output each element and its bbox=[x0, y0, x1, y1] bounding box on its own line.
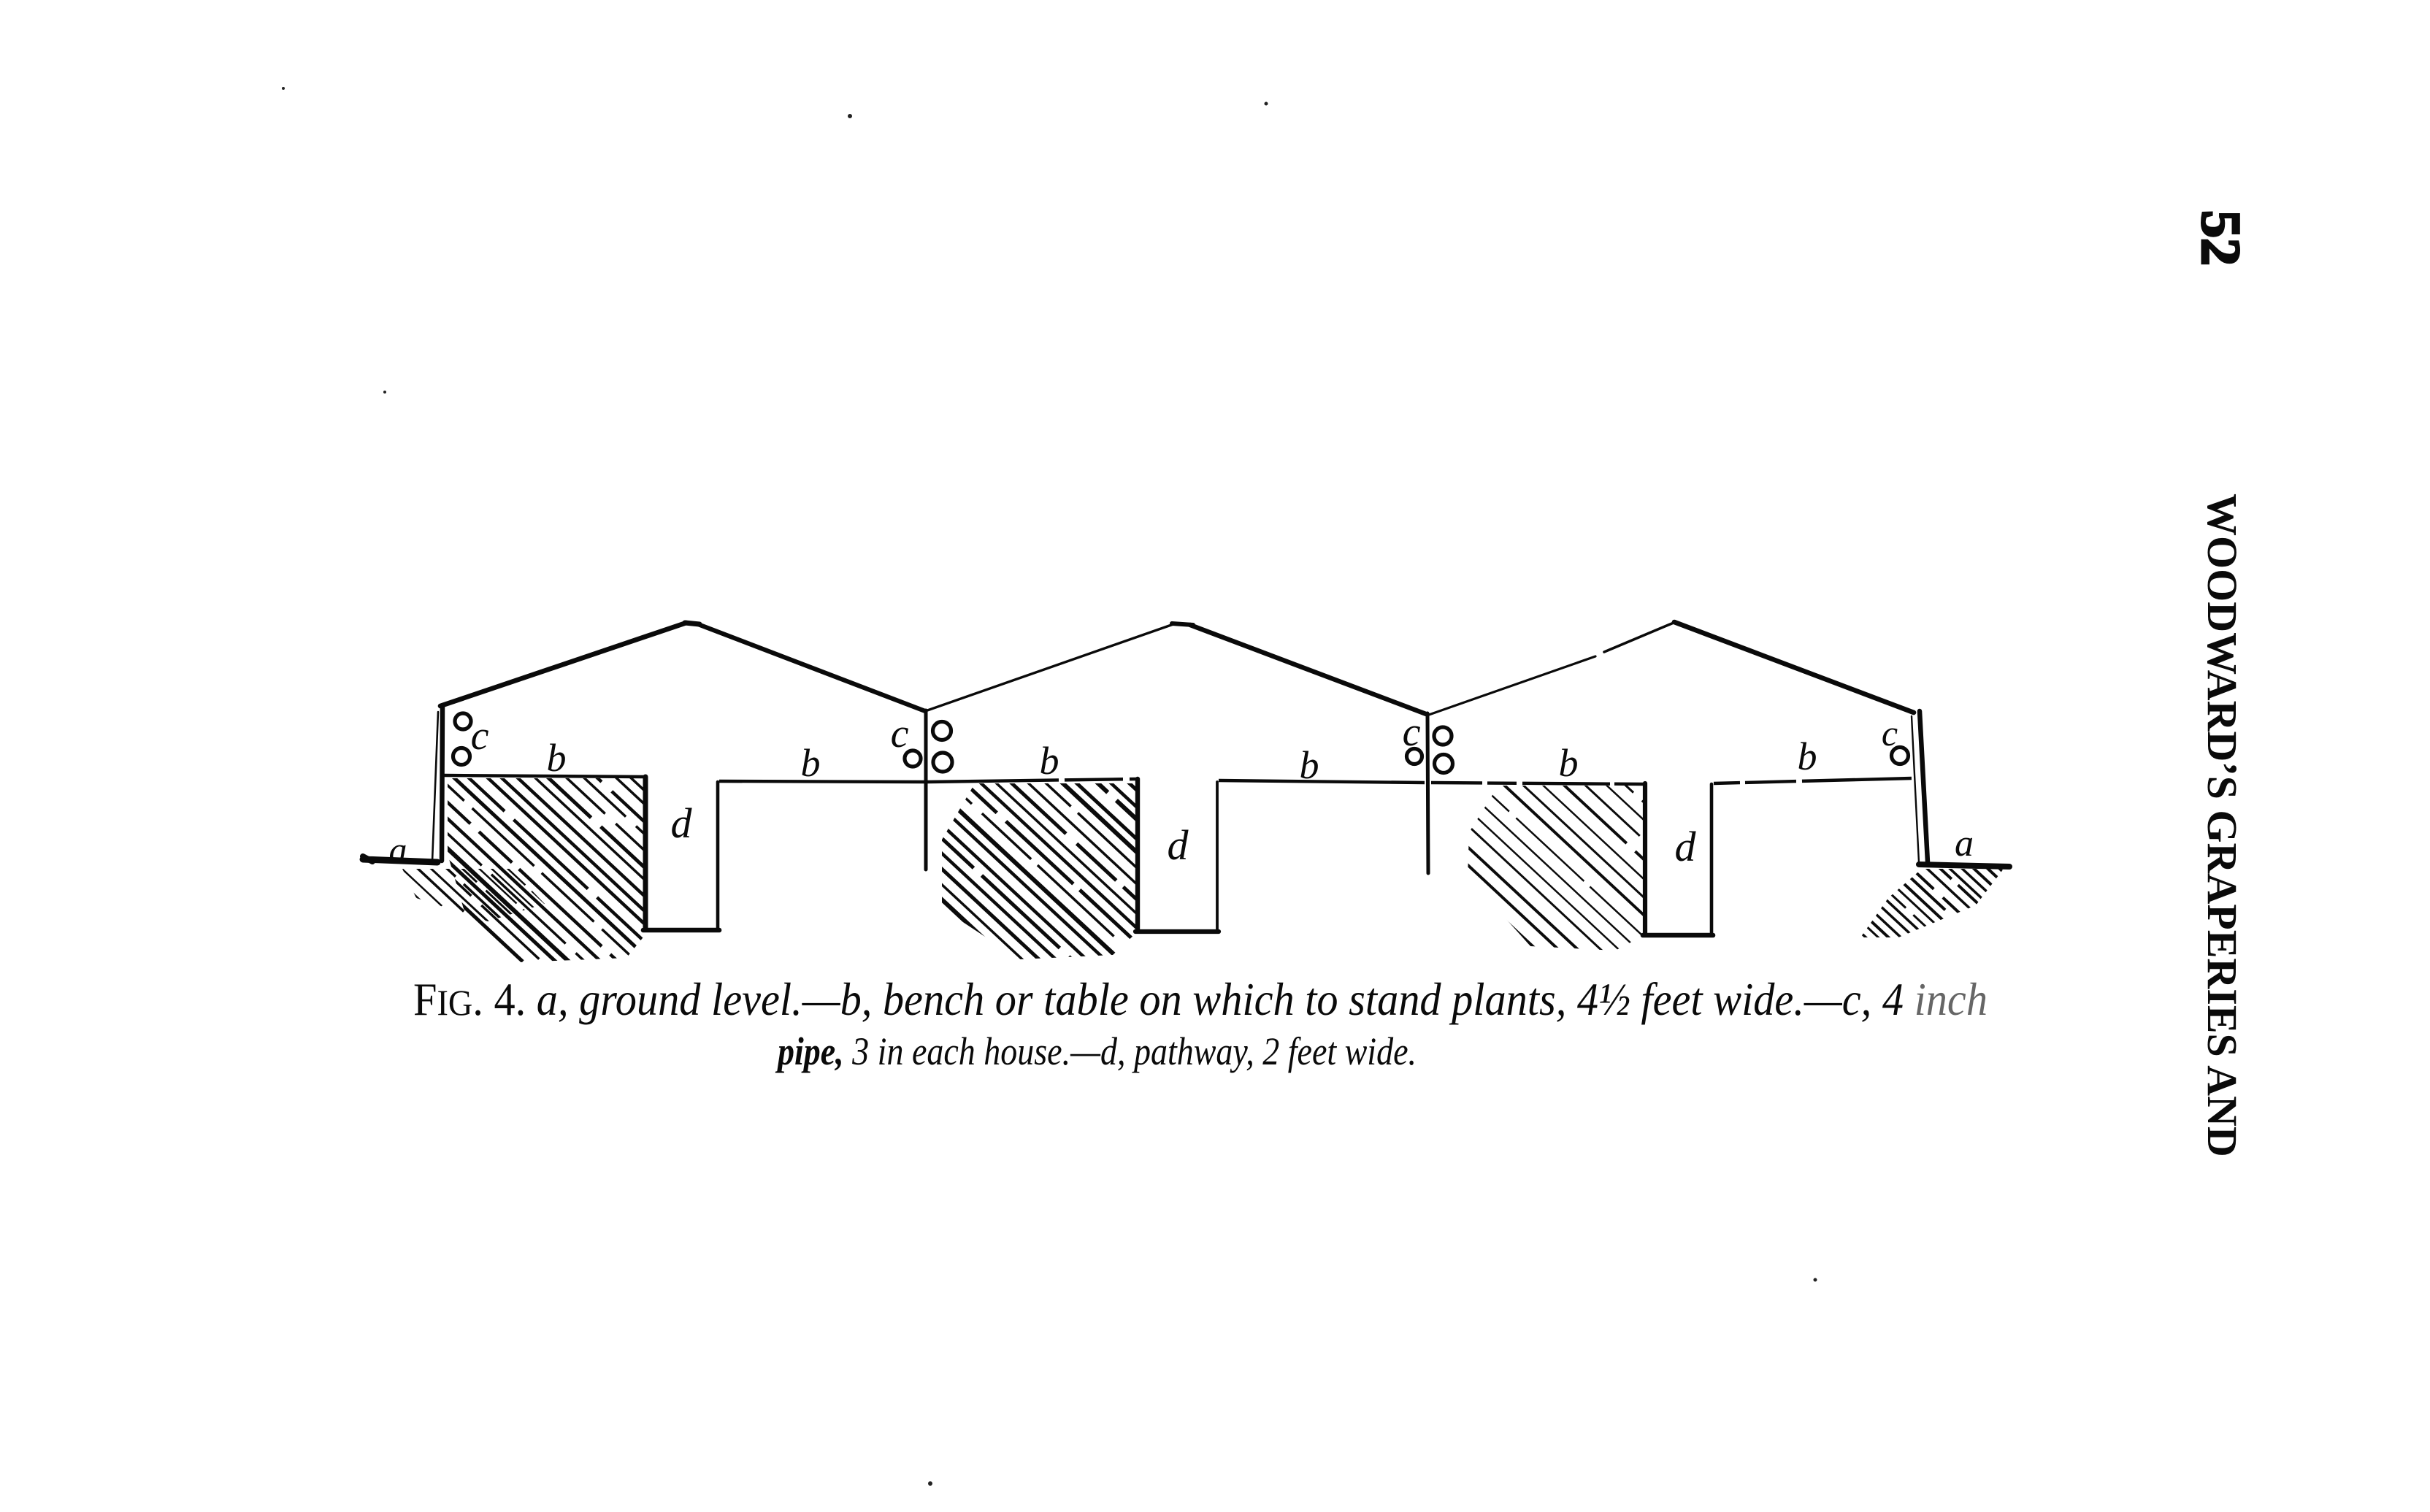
svg-text:a: a bbox=[1955, 823, 1974, 864]
svg-text:c: c bbox=[1403, 710, 1421, 755]
svg-text:b: b bbox=[1559, 741, 1579, 785]
svg-text:d: d bbox=[1675, 823, 1697, 870]
svg-text:d: d bbox=[1168, 821, 1189, 869]
svg-text:b: b bbox=[801, 741, 821, 785]
svg-text:WOODWARD’S GRAPERIES AND: WOODWARD’S GRAPERIES AND bbox=[2199, 494, 2246, 1157]
svg-text:b: b bbox=[1040, 739, 1059, 783]
svg-text:b: b bbox=[1798, 734, 1817, 778]
svg-text:b: b bbox=[547, 736, 567, 780]
svg-text:d: d bbox=[671, 799, 693, 847]
svg-text:b: b bbox=[1300, 743, 1319, 787]
svg-text:c: c bbox=[891, 711, 909, 756]
svg-text:52: 52 bbox=[2190, 210, 2251, 266]
svg-text:pipe, 3 in each house.—d, path: pipe, 3 in each house.—d, pathway, 2 fee… bbox=[775, 1029, 1417, 1073]
svg-text:FIG. 4. a, ground level.—b, be: FIG. 4. a, ground level.—b, bench or tab… bbox=[413, 974, 1988, 1025]
svg-text:c: c bbox=[471, 713, 489, 759]
svg-text:c: c bbox=[1882, 713, 1898, 753]
svg-text:a: a bbox=[389, 829, 407, 870]
